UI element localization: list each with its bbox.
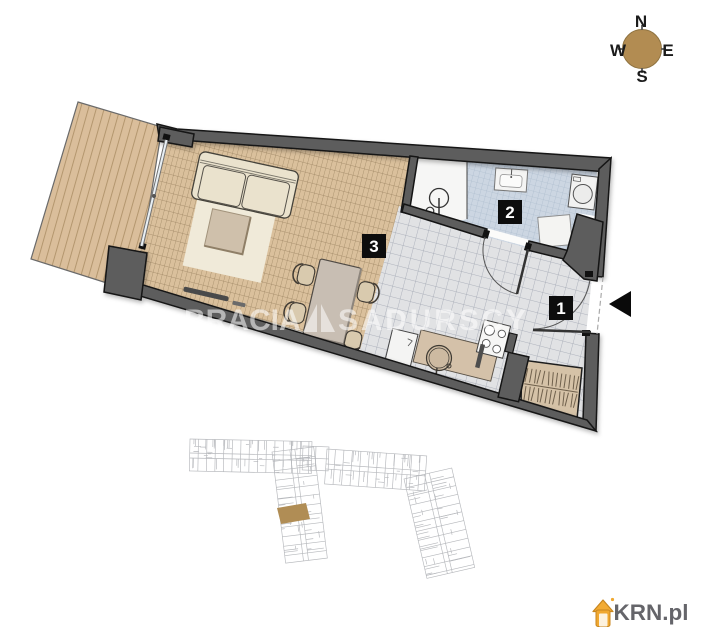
svg-text:S: S bbox=[636, 67, 647, 86]
svg-text:KRN.pl: KRN.pl bbox=[614, 600, 689, 625]
svg-text:2: 2 bbox=[505, 203, 514, 222]
svg-text:BRACIA: BRACIA bbox=[184, 304, 301, 337]
svg-text:N: N bbox=[635, 12, 647, 31]
svg-text:W: W bbox=[610, 41, 627, 60]
svg-text:SADURSCY: SADURSCY bbox=[338, 304, 529, 337]
svg-text:E: E bbox=[662, 41, 673, 60]
svg-text:1: 1 bbox=[556, 299, 565, 318]
svg-text:3: 3 bbox=[369, 237, 378, 256]
